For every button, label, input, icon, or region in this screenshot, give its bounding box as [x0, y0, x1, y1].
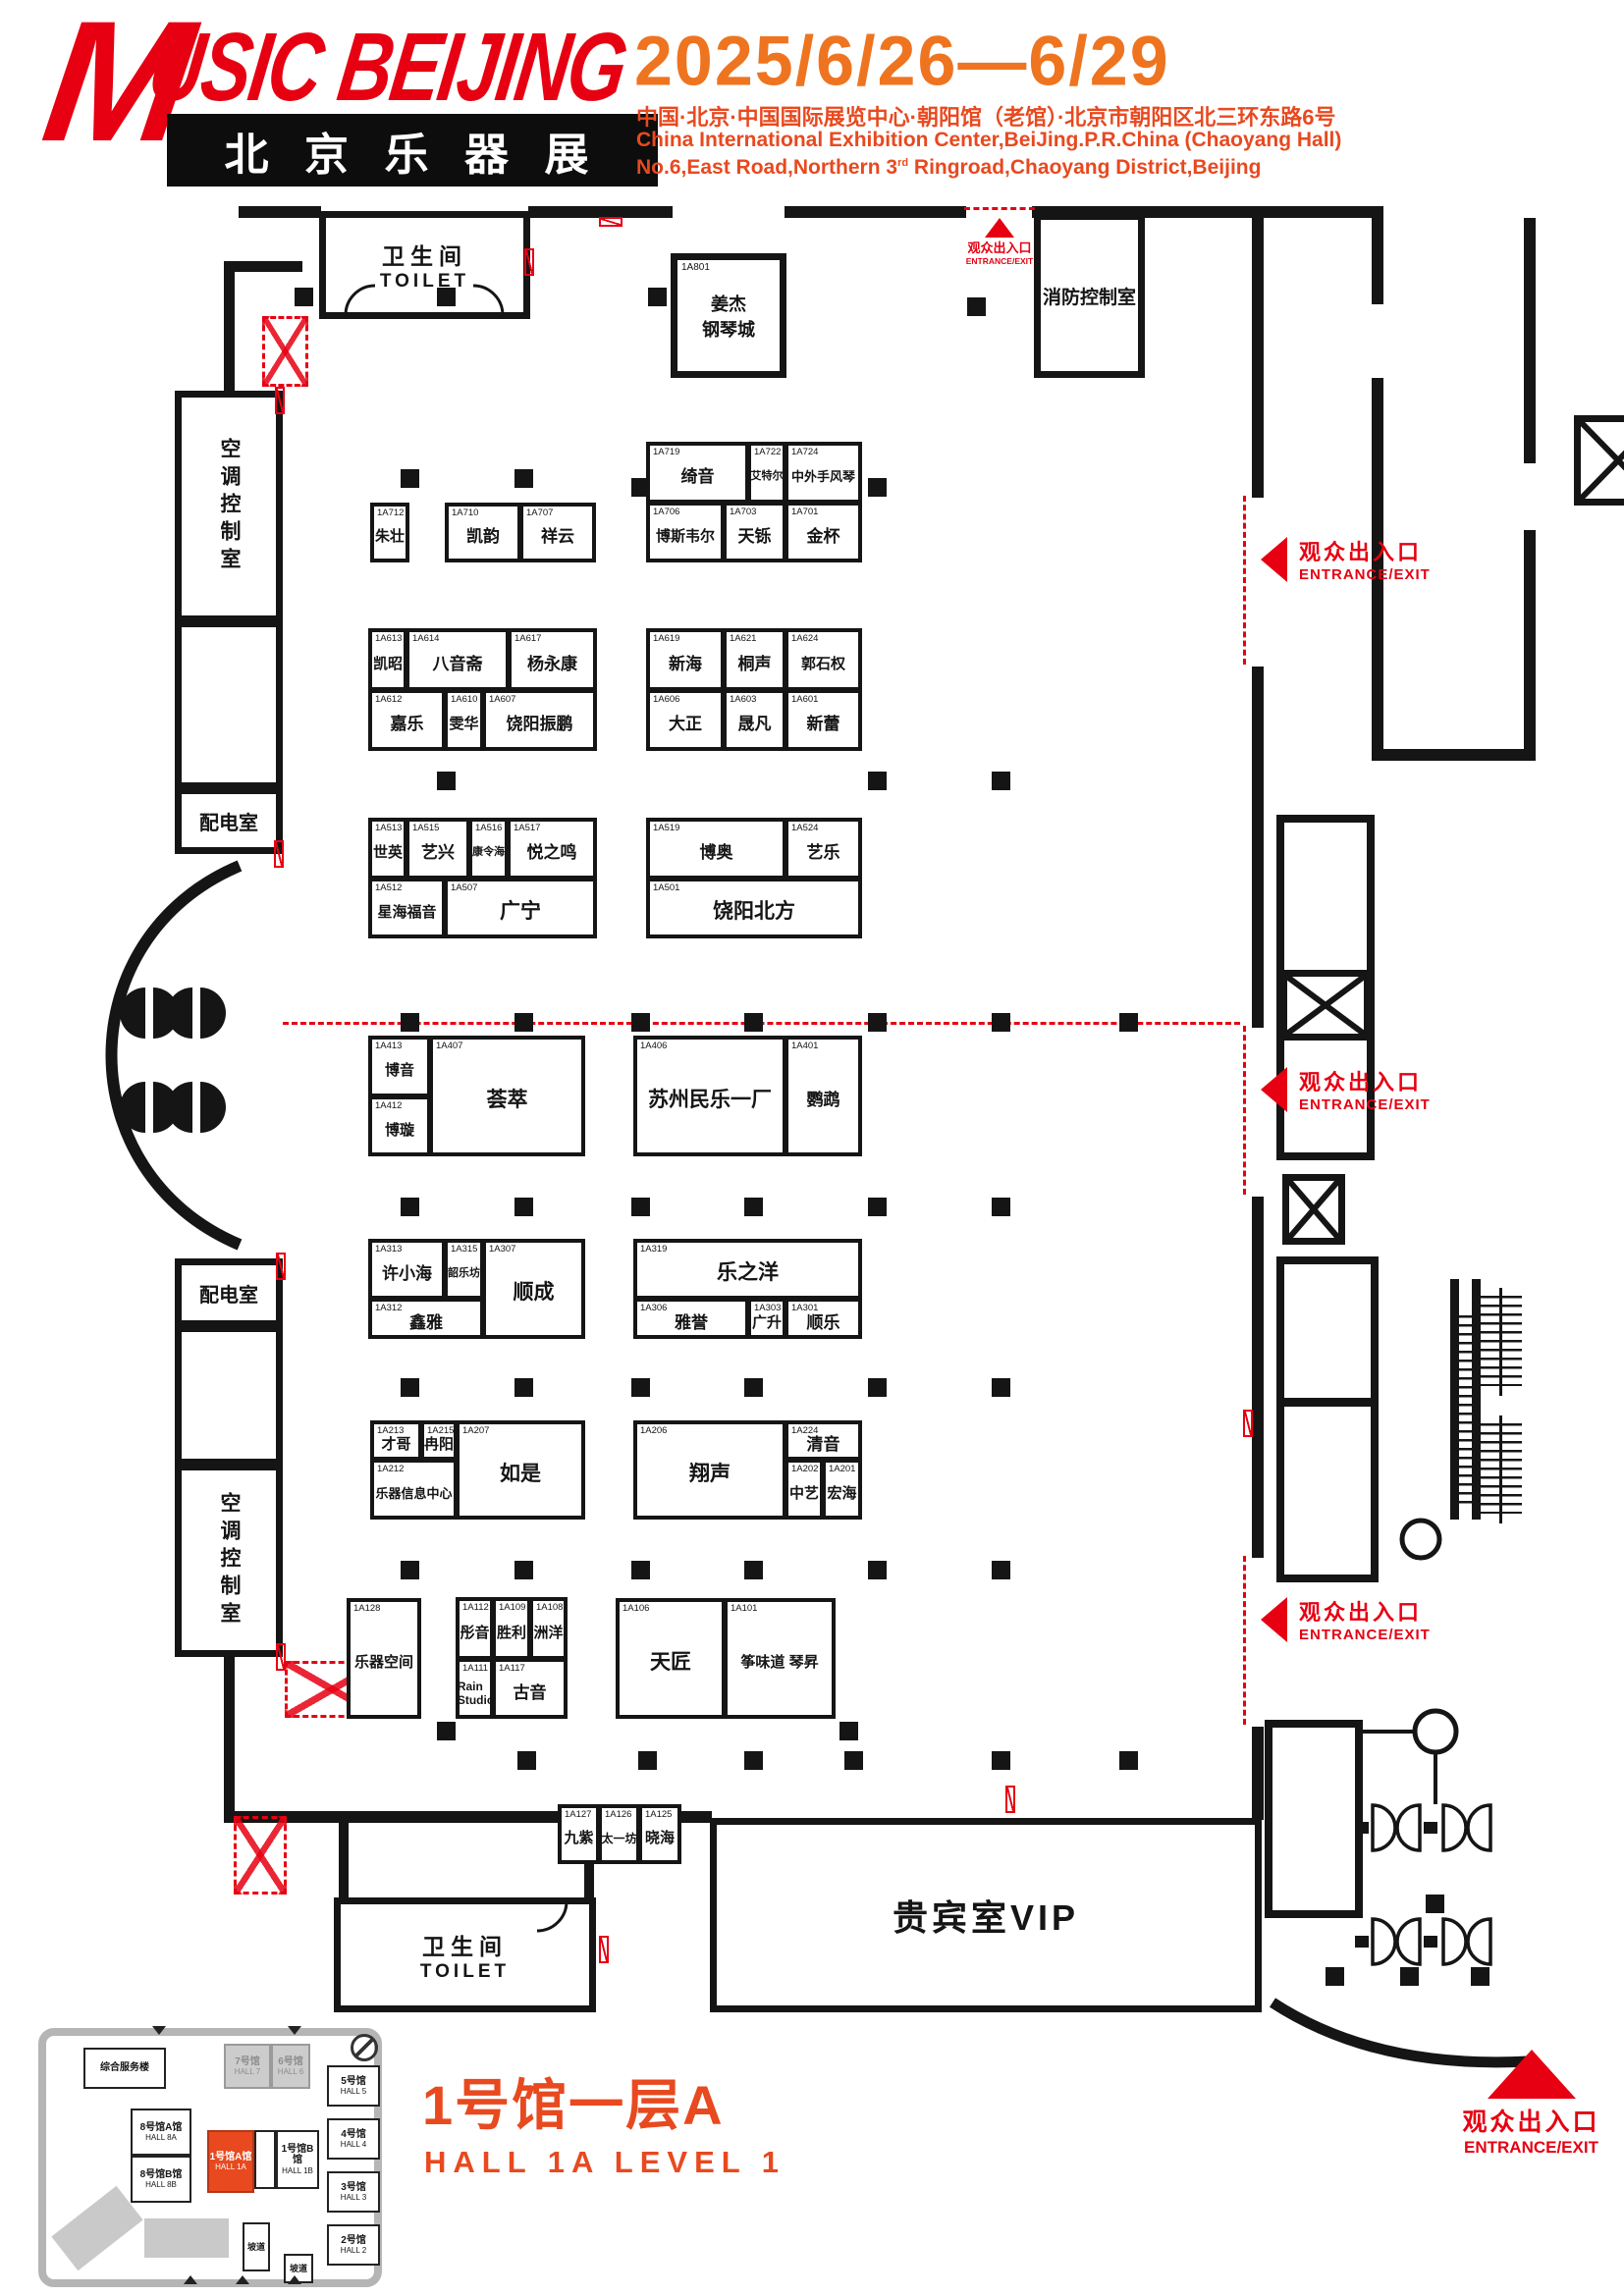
entrance-label-en: ENTRANCE/EXIT [1299, 566, 1431, 583]
booth-1A707: 1A707祥云 [519, 503, 596, 562]
wall [1280, 1398, 1375, 1407]
booth-1A127: 1A127九紫 [558, 1804, 600, 1864]
door-marker-icon [276, 1643, 286, 1671]
fire-control-label: 消防控制室 [1043, 283, 1136, 309]
door-marker-icon [599, 1936, 609, 1963]
booth-1A126: 1A126太一坊 [598, 1804, 640, 1864]
booth-1A512: 1A512星海福音 [368, 878, 446, 938]
room-unlabeled [175, 620, 283, 789]
minimap-hall-7: 7号馆HALL 7 [224, 2044, 271, 2089]
room-toilet-bottom: 卫生间 TOILET [334, 1897, 596, 2012]
pillar [514, 469, 533, 488]
minimap-ramp: 坡道 [243, 2222, 270, 2271]
address-en-line1: China International Exhibition Center,Be… [636, 129, 1341, 152]
power-label: 配电室 [199, 1279, 258, 1308]
booth-1A206: 1A206翔声 [633, 1420, 786, 1520]
minimap-service-building: 综合服务楼 [83, 2048, 166, 2089]
booth-1A724: 1A724中外手风琴 [785, 442, 862, 504]
room-vip: 贵宾室VIP [710, 1818, 1262, 2012]
pillar [992, 1013, 1010, 1032]
minimap-gate-icon [184, 2275, 197, 2284]
pillar [992, 1751, 1010, 1770]
entrance-label-cn: 观众出入口 [1299, 1595, 1431, 1627]
floorplan-page: M USIC BEIJING 北 京 乐 器 展 2025/6/26—6/29 … [0, 0, 1624, 2296]
address-en-line2: No.6,East Road,Northern 3rd Ringroad,Cha… [636, 156, 1261, 180]
wall [224, 1652, 235, 1823]
booth-1A607: 1A607饶阳振鹏 [482, 689, 597, 751]
booth-1A603: 1A603晟凡 [723, 689, 786, 751]
room-piano-city: 1A801 姜杰 钢琴城 [671, 253, 786, 378]
booth-1A202: 1A202中艺 [785, 1459, 824, 1520]
booth-1A606: 1A606大正 [646, 689, 725, 751]
elevator-icon [1280, 970, 1371, 1041]
minimap-hall-3: 3号馆HALL 3 [327, 2171, 380, 2213]
pillar [744, 1013, 763, 1032]
booth-1A106: 1A106天匠 [616, 1598, 726, 1719]
toilet-label-en: TOILET [380, 271, 469, 293]
booth-1A312: 1A312鑫雅 [368, 1298, 484, 1339]
booth-1A301: 1A301顺乐 [785, 1298, 862, 1339]
fire-shutter-icon [262, 316, 308, 387]
minimap-hall-1a-highlight: 1号馆A馆HALL 1A [207, 2130, 254, 2193]
toilet-label-cn: 卫生间 [422, 1928, 508, 1961]
entrance-bottom-right: 观众出入口 ENTRANCE/EXIT [1435, 2050, 1624, 2158]
booth-1A125: 1A125晓海 [638, 1804, 681, 1864]
booth-1A515: 1A515艺兴 [406, 818, 470, 880]
wall [785, 206, 966, 218]
booth-1A412: 1A412博璇 [368, 1095, 431, 1156]
minimap-gate-icon [152, 2026, 166, 2035]
booth-1A624: 1A624郭石权 [785, 628, 862, 691]
booth-1A601: 1A601新蕾 [785, 689, 862, 751]
pillar [1326, 1967, 1344, 1986]
pillar [967, 297, 986, 316]
room-power-top: 配电室 [175, 787, 283, 854]
pillar [839, 1722, 858, 1740]
entrance-label-cn: 观众出入口 [1299, 1065, 1431, 1096]
fire-shutter-icon [234, 1816, 287, 1895]
minimap-hall-4: 4号馆HALL 4 [327, 2118, 380, 2160]
room-hvac-bottom: 空调控制室 [175, 1464, 283, 1657]
pillar [1119, 1013, 1138, 1032]
wall [224, 261, 235, 393]
booth-1A108: 1A108洲洋 [529, 1597, 568, 1660]
hvac-label: 空调控制室 [214, 1492, 244, 1629]
minimap-hall-1b: 1号馆B馆HALL 1B [276, 2130, 319, 2189]
elevator-icon [1282, 1174, 1345, 1245]
pillar [1471, 1967, 1489, 1986]
pillar [437, 1722, 456, 1740]
booth-1A524: 1A524艺乐 [785, 818, 862, 880]
event-dates: 2025/6/26—6/29 [634, 21, 1170, 101]
wall [1524, 530, 1536, 761]
wall [283, 1811, 560, 1823]
pillar [401, 1198, 419, 1216]
booth-1A213: 1A213才哥 [370, 1420, 422, 1461]
booth-1A516: 1A516康令海 [468, 818, 509, 880]
minimap-hall-5: 5号馆HALL 5 [327, 2065, 380, 2107]
booth-1A501: 1A501饶阳北方 [646, 878, 862, 938]
wall [239, 206, 321, 218]
booth-1A101: 1A101筝味道 琴昇 [724, 1598, 836, 1719]
power-label: 配电室 [199, 807, 258, 835]
pillar [844, 1751, 863, 1770]
door-marker-icon [276, 1253, 286, 1280]
booth-1A612: 1A612嘉乐 [368, 689, 446, 751]
minimap-hall-8a: 8号馆A馆HALL 8A [131, 2109, 191, 2156]
room-hvac-top: 空调控制室 [175, 391, 283, 622]
wall [1372, 206, 1383, 304]
pillar [437, 288, 456, 306]
pillar [514, 1561, 533, 1579]
door-marker-icon [524, 248, 534, 276]
toilet-label-cn: 卫生间 [382, 238, 467, 271]
booth-1A212: 1A212乐器信息中心 [370, 1459, 458, 1520]
booth-1A207: 1A207如是 [456, 1420, 585, 1520]
booth-1A703: 1A703天铄 [723, 502, 786, 562]
logo-banner-text: 北 京 乐 器 展 [224, 119, 600, 183]
booth-1A614: 1A614八音斋 [406, 628, 510, 691]
entrance-dashed-gap [1243, 1026, 1246, 1195]
booth-1A617: 1A617杨永康 [508, 628, 597, 691]
booth-1A519: 1A519博奥 [646, 818, 786, 880]
wall [1252, 1197, 1264, 1558]
booth-1A112: 1A112彤音 [456, 1597, 494, 1660]
elevator-icon [1574, 415, 1624, 506]
minimap-hall-6: 6号馆HALL 6 [271, 2044, 310, 2089]
pillar [631, 478, 650, 497]
escalator-steps [1481, 1296, 1522, 1386]
pillar [1400, 1967, 1419, 1986]
wall [1524, 218, 1536, 463]
booth-1A307: 1A307顺成 [482, 1239, 585, 1339]
booth-1A719: 1A719绮音 [646, 442, 749, 504]
pillar [868, 478, 887, 497]
pillar [514, 1198, 533, 1216]
booth-1A224: 1A224清音 [785, 1420, 862, 1461]
booth-1A319: 1A319乐之洋 [633, 1239, 862, 1300]
wall [1252, 206, 1264, 498]
entrance-top: 观众出入口 ENTRANCE/EXIT [941, 218, 1058, 266]
pillar [631, 1378, 650, 1397]
booth-1A111: 1A111Rain Studio [456, 1658, 494, 1719]
pillar [437, 772, 456, 790]
room-unlabeled [175, 1325, 283, 1466]
wall [339, 1823, 349, 1901]
venue-minimap: 综合服务楼 7号馆HALL 7 6号馆HALL 6 5号馆HALL 5 4号馆H… [34, 2024, 386, 2291]
address-cn: 中国·北京·中国国际展览中心·朝阳馆（老馆）·北京市朝阳区北三环东路6号 [636, 100, 1336, 132]
booth-1A215: 1A215冉阳 [420, 1420, 458, 1461]
booth-1A201: 1A201宏海 [822, 1459, 862, 1520]
page-title-en: HALL 1A LEVEL 1 [424, 2145, 785, 2180]
door-marker-icon [274, 840, 284, 868]
pillar [1119, 1751, 1138, 1770]
booth-1A619: 1A619新海 [646, 628, 725, 691]
booth-1A513: 1A513世英 [368, 818, 407, 880]
entrance-arrow-icon [1261, 537, 1287, 582]
page-title-cn: 1号馆一层A [422, 2061, 725, 2141]
wall [681, 1811, 712, 1823]
room-power-mid: 配电室 [175, 1258, 283, 1327]
minimap-connector [254, 2130, 276, 2189]
escalator-rail [1472, 1279, 1481, 1520]
logo: M USIC BEIJING 北 京 乐 器 展 [47, 14, 636, 200]
pillar [401, 469, 419, 488]
pillar [514, 1013, 533, 1032]
escalator-rail [1450, 1279, 1459, 1520]
door-marker-icon [599, 217, 623, 227]
booth-1A401: 1A401鹦鹉 [785, 1036, 862, 1156]
booth-1A315: 1A315韶乐坊 [444, 1239, 484, 1300]
entrance-arrow-icon [1261, 1067, 1287, 1112]
pillar [992, 772, 1010, 790]
entrance-label-en: ENTRANCE/EXIT [941, 256, 1058, 266]
booth-1A313: 1A313许小海 [368, 1239, 446, 1300]
wall [1252, 1727, 1264, 1820]
entrance-label-en: ENTRANCE/EXIT [1435, 2138, 1624, 2158]
minimap-hall-2: 2号馆HALL 2 [327, 2224, 380, 2266]
logo-wordmark: USIC BEIJING [143, 20, 631, 117]
pillar [631, 1198, 650, 1216]
booth-1A128: 1A128乐器空间 [347, 1598, 421, 1719]
pillar [514, 1378, 533, 1397]
hvac-label: 空调控制室 [214, 438, 244, 575]
minimap-gate-icon [236, 2275, 249, 2284]
pillar [1426, 1895, 1444, 1913]
compass-icon [351, 2034, 378, 2061]
wall [224, 261, 302, 272]
wall [1383, 749, 1529, 761]
booth-1A303: 1A303广升 [747, 1298, 786, 1339]
booth-1A507: 1A507广宁 [444, 878, 597, 938]
booth-1A610: 1A610雯华 [444, 689, 484, 751]
pillar [401, 1561, 419, 1579]
pillar [517, 1751, 536, 1770]
booth-1A621: 1A621桐声 [723, 628, 786, 691]
entrance-right-1: 观众出入口ENTRANCE/EXIT [1261, 535, 1431, 583]
entrance-dashed-gap [1243, 496, 1246, 665]
booth-1A517: 1A517悦之鸣 [507, 818, 597, 880]
room-turnstile [1265, 1720, 1363, 1918]
entrance-arrow-icon [1488, 2050, 1576, 2099]
booth-1A706: 1A706博斯韦尔 [646, 502, 725, 562]
booth-1A613: 1A613凯昭 [368, 628, 407, 691]
escalator-steps [1481, 1423, 1522, 1514]
pillar [992, 1198, 1010, 1216]
pillar [744, 1198, 763, 1216]
shaft [1276, 1256, 1379, 1582]
pillar [868, 772, 887, 790]
pillar [868, 1198, 887, 1216]
entrance-arrow-icon [985, 218, 1014, 238]
entrance-right-2: 观众出入口ENTRANCE/EXIT [1261, 1065, 1431, 1113]
wall [1264, 206, 1383, 218]
booth-1A407: 1A407荟萃 [429, 1036, 585, 1156]
piano-city-name: 钢琴城 [702, 316, 755, 342]
pillar [744, 1561, 763, 1579]
booth-1A413: 1A413博音 [368, 1036, 431, 1097]
booth-1A117: 1A117古音 [492, 1658, 568, 1719]
pillar [648, 288, 667, 306]
pillar [992, 1561, 1010, 1579]
escalator-steps [1459, 1315, 1473, 1508]
booth-1A710: 1A710凯韵 [445, 503, 521, 562]
entrance-right-3: 观众出入口ENTRANCE/EXIT [1261, 1595, 1431, 1643]
pillar [744, 1751, 763, 1770]
vip-label: 贵宾室VIP [893, 1890, 1079, 1941]
pillar [401, 1378, 419, 1397]
booth-1A701: 1A701金杯 [785, 502, 862, 562]
minimap-gate-icon [288, 2026, 301, 2035]
booth-1A109: 1A109胜利 [492, 1597, 531, 1660]
room-toilet-top: 卫生间 TOILET [319, 211, 530, 319]
pillar [638, 1751, 657, 1770]
booth-id: 1A801 [681, 262, 710, 273]
entrance-dashed-gap [964, 207, 1035, 210]
door-marker-icon [1243, 1410, 1253, 1437]
minimap-block [144, 2218, 229, 2258]
booth-1A406: 1A406苏州民乐一厂 [633, 1036, 786, 1156]
pillar [631, 1561, 650, 1579]
pillar [868, 1561, 887, 1579]
entrance-label-cn: 观众出入口 [1435, 2103, 1624, 2138]
pillar [631, 1013, 650, 1032]
logo-banner: 北 京 乐 器 展 [167, 114, 658, 187]
entrance-label-en: ENTRANCE/EXIT [1299, 1096, 1431, 1113]
door-marker-icon [275, 387, 285, 414]
toilet-label-en: TOILET [420, 1961, 510, 1983]
minimap-hall-8b: 8号馆B馆HALL 8B [131, 2156, 191, 2203]
pillar [868, 1378, 887, 1397]
pillar [744, 1378, 763, 1397]
pillar [992, 1378, 1010, 1397]
booth-1A722: 1A722艾特尔 [747, 442, 786, 504]
pillar [868, 1013, 887, 1032]
entrance-label-cn: 观众出入口 [1299, 535, 1431, 566]
entrance-dashed-gap [1243, 1556, 1246, 1725]
booth-1A306: 1A306雅誉 [633, 1298, 749, 1339]
booth-1A712: 1A712朱壮 [370, 503, 409, 562]
piano-city-name: 姜杰 [711, 291, 746, 316]
pillar [401, 1013, 419, 1032]
entrance-arrow-icon [1261, 1597, 1287, 1642]
door-marker-icon [1005, 1786, 1015, 1813]
pillar [295, 288, 313, 306]
minimap-gate-icon [288, 2275, 301, 2284]
entrance-label-en: ENTRANCE/EXIT [1299, 1627, 1431, 1643]
entrance-label-cn: 观众出入口 [941, 238, 1058, 256]
wall [1252, 667, 1264, 1028]
